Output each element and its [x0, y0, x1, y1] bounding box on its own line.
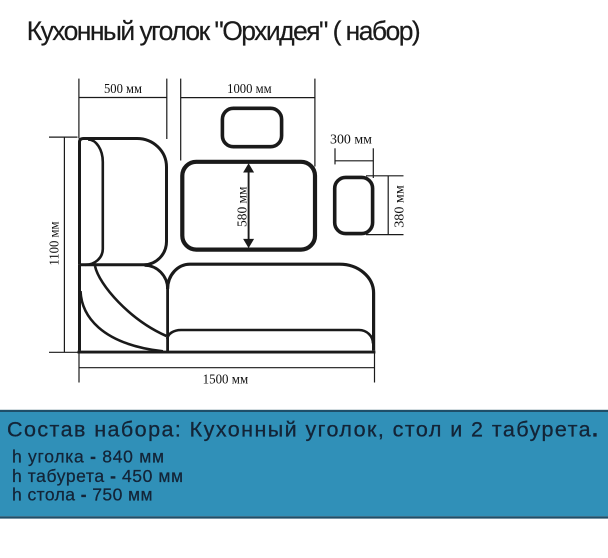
svg-text:580 мм: 580 мм	[235, 186, 250, 227]
svg-text:380 мм: 380 мм	[393, 185, 408, 228]
svg-text:1000 мм: 1000 мм	[227, 82, 272, 97]
svg-text:h уголка - 840 мм: h уголка - 840 мм	[12, 447, 164, 467]
svg-text:Кухонный уголок "Орхидея" ( н: Кухонный уголок "Орхидея" ( набор)	[27, 16, 421, 46]
svg-text:h стола - 750 мм: h стола - 750 мм	[12, 484, 153, 504]
svg-text:Состав набора: Кухонный уголок: Состав набора: Кухонный уголок, стол и 2…	[7, 418, 598, 442]
svg-text:h табурета - 450 мм: h табурета - 450 мм	[12, 466, 183, 486]
svg-text:1500 мм: 1500 мм	[203, 373, 249, 388]
svg-text:300 мм: 300 мм	[330, 133, 372, 148]
svg-text:1100 мм: 1100 мм	[48, 221, 63, 265]
svg-text:500 мм: 500 мм	[104, 82, 142, 97]
